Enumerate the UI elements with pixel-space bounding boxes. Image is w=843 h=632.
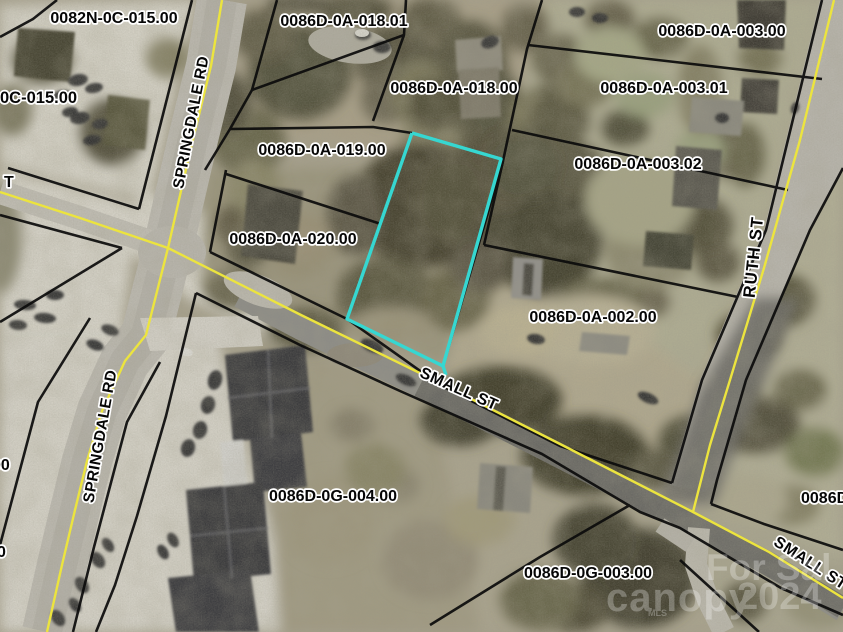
svg-text:0: 0: [0, 544, 6, 561]
svg-text:0086D-0A-003.00: 0086D-0A-003.00: [658, 23, 785, 40]
svg-text:0086D-0G-004.00: 0086D-0G-004.00: [269, 488, 397, 505]
svg-text:0086D-0A-003.01: 0086D-0A-003.01: [600, 80, 727, 97]
svg-text:0086D-0A-003.02: 0086D-0A-003.02: [574, 156, 701, 173]
svg-text:0082N-0C-015.00: 0082N-0C-015.00: [50, 10, 177, 27]
svg-text:0086D-0A-019.00: 0086D-0A-019.00: [258, 142, 385, 159]
svg-text:2024: 2024: [737, 576, 822, 618]
svg-text:0086D-0A-018.01: 0086D-0A-018.01: [280, 13, 407, 30]
svg-text:00: 00: [0, 457, 10, 474]
svg-text:0086D-0: 0086D-0: [801, 490, 843, 507]
svg-text:0086D-0A-002.00: 0086D-0A-002.00: [529, 309, 656, 326]
svg-text:0086D-0A-018.00: 0086D-0A-018.00: [390, 80, 517, 97]
svg-text:0086D-0A-020.00: 0086D-0A-020.00: [229, 231, 356, 248]
svg-text:canopy: canopy: [606, 576, 752, 620]
svg-text:MLS: MLS: [648, 608, 667, 618]
svg-text:0C-015.00: 0C-015.00: [0, 89, 77, 107]
svg-text:T: T: [4, 174, 14, 191]
